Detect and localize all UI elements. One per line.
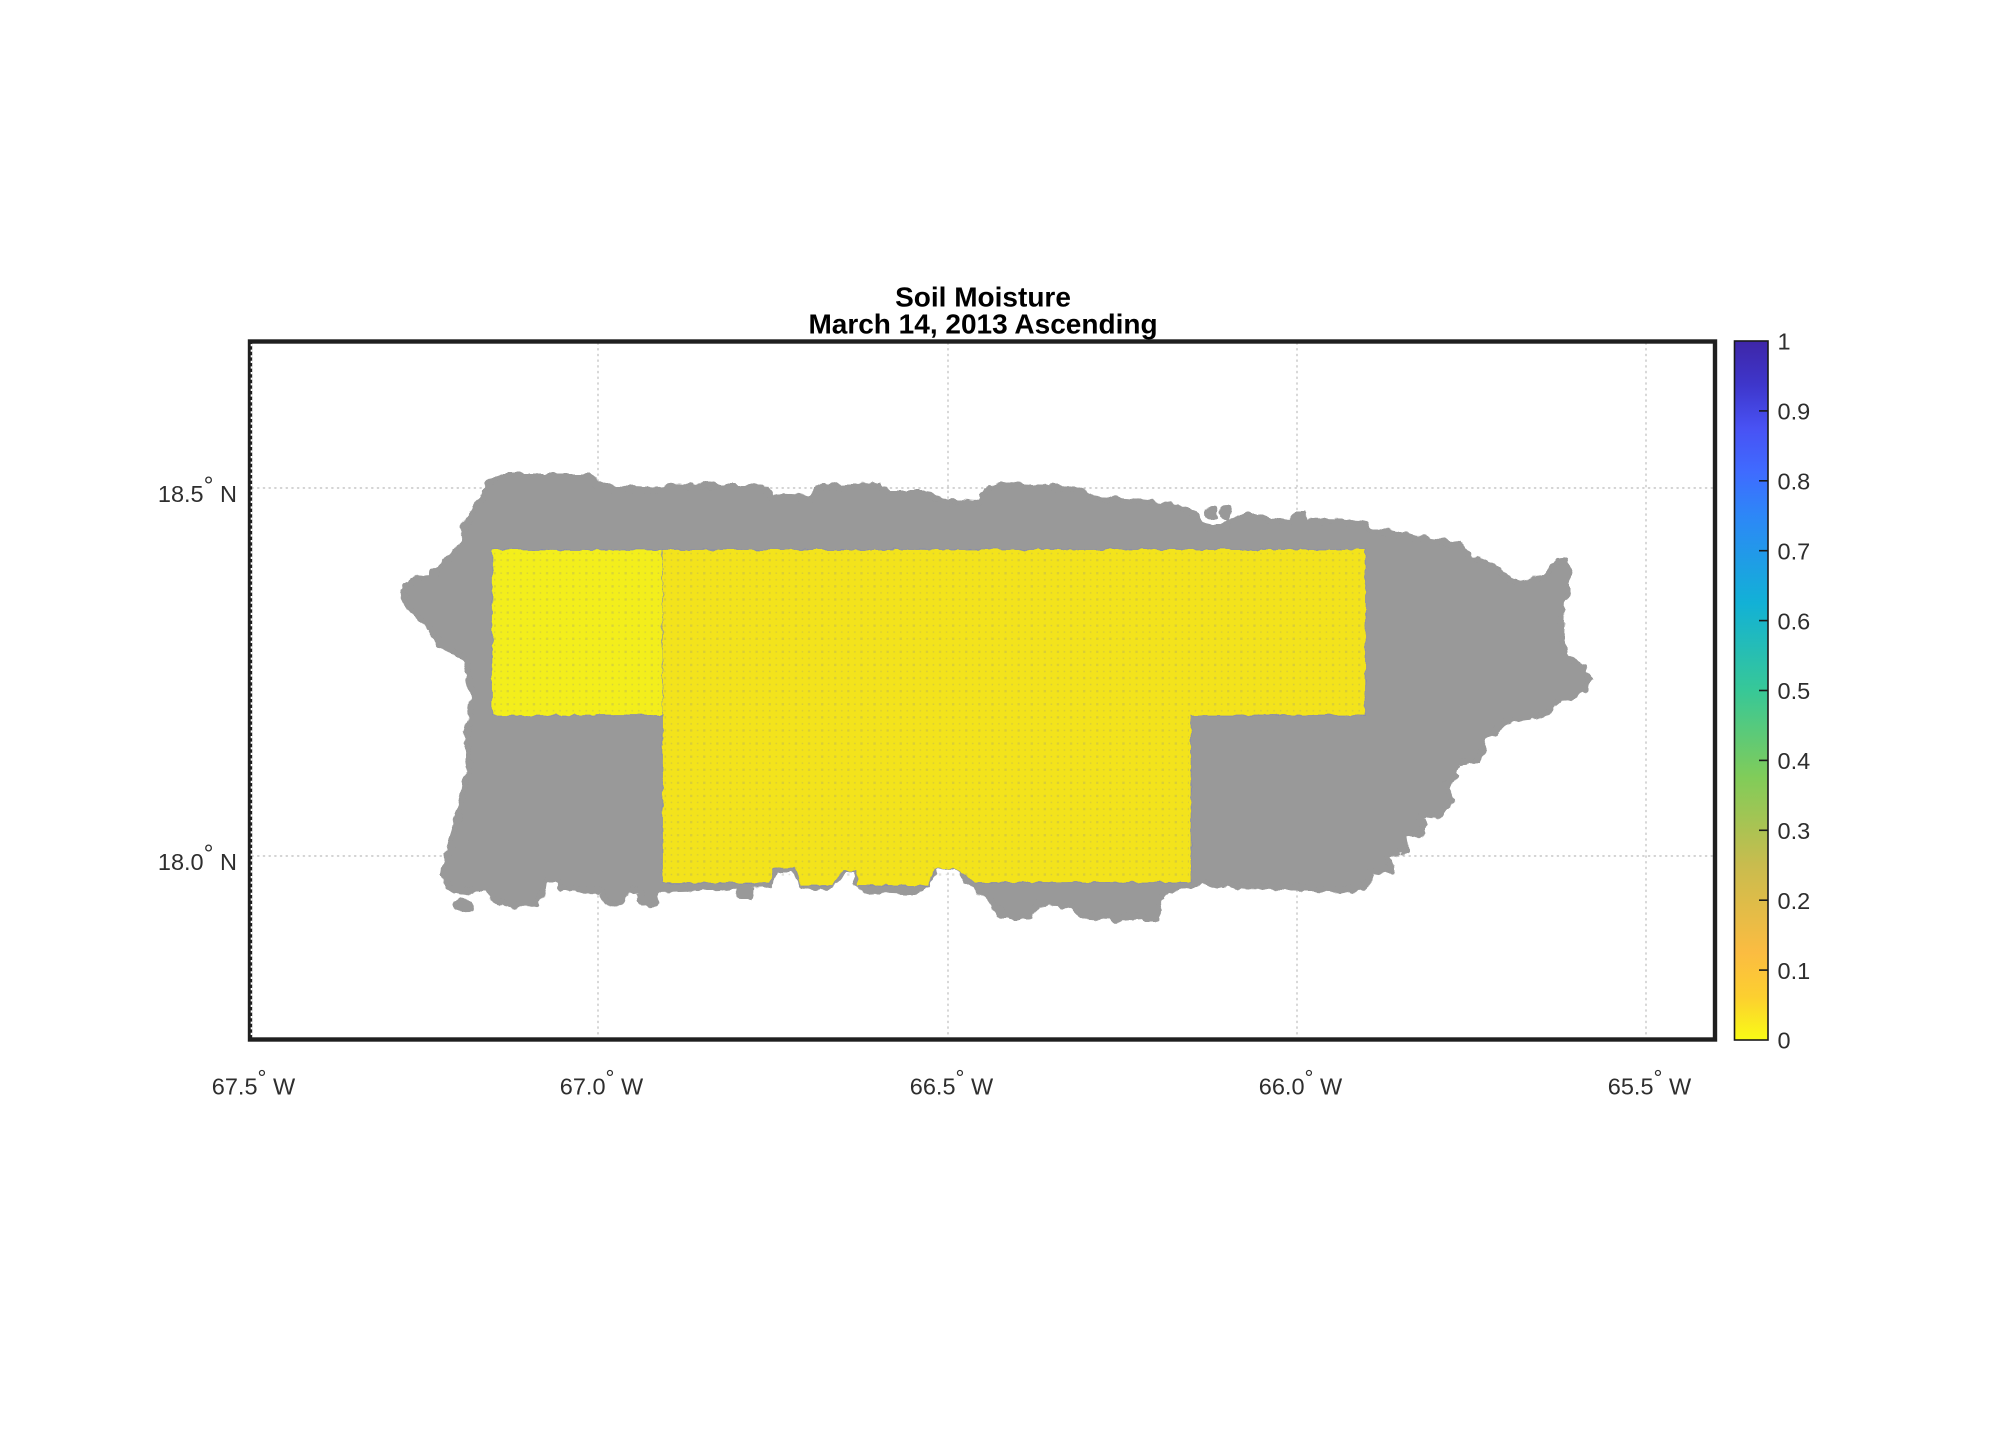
svg-text:0.7: 0.7 bbox=[1778, 538, 1811, 564]
svg-text:0.8: 0.8 bbox=[1778, 469, 1811, 495]
svg-text:1: 1 bbox=[1778, 329, 1791, 355]
svg-text:March 14, 2013 Ascending: March 14, 2013 Ascending bbox=[808, 309, 1157, 340]
svg-text:0.4: 0.4 bbox=[1778, 748, 1811, 774]
svg-text:0.1: 0.1 bbox=[1778, 958, 1811, 984]
svg-text:0.2: 0.2 bbox=[1778, 888, 1811, 914]
svg-text:0.5: 0.5 bbox=[1778, 678, 1811, 704]
svg-text:0.3: 0.3 bbox=[1778, 818, 1811, 844]
svg-text:0.9: 0.9 bbox=[1778, 399, 1811, 425]
svg-text:0.6: 0.6 bbox=[1778, 608, 1811, 634]
svg-text:0: 0 bbox=[1778, 1028, 1791, 1054]
